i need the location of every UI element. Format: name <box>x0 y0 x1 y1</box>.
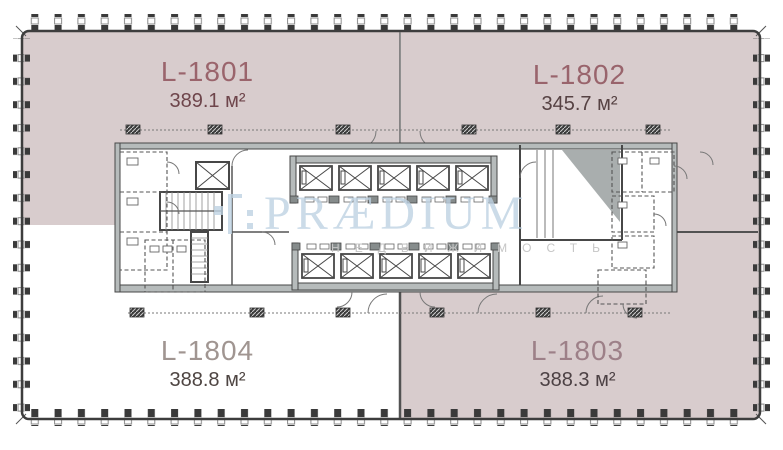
unit-zone-1801-side <box>23 143 116 225</box>
unit-id[interactable]: L-1804 <box>120 336 295 366</box>
core-left-section <box>120 150 289 292</box>
elevator-cell <box>378 166 410 202</box>
unit-label-1801[interactable]: L-1801 389.1 м² <box>120 57 295 113</box>
unit-area: 388.3 м² <box>490 370 665 392</box>
unit-label-1803[interactable]: L-1803 388.3 м² <box>490 336 665 392</box>
elevator-cell <box>380 244 412 278</box>
unit-label-1802[interactable]: L-1802 345.7 м² <box>492 60 667 116</box>
unit-label-1804[interactable]: L-1804 388.8 м² <box>120 336 295 392</box>
elevator-cell <box>458 244 490 278</box>
floorplan-page: PRÆDIUM НЕДВИЖИМОСТЬ L-1801 389.1 м² L-1… <box>0 0 783 450</box>
elevator-cell <box>300 166 332 202</box>
unit-area: 345.7 м² <box>492 94 667 116</box>
unit-area: 388.8 м² <box>120 370 295 392</box>
unit-id[interactable]: L-1803 <box>490 336 665 366</box>
elevator-bank-bottom <box>292 243 499 290</box>
unit-zone-right-strip <box>677 143 759 418</box>
stair-main <box>160 192 222 230</box>
elevator-cell <box>456 166 488 202</box>
elevator-cell <box>419 244 451 278</box>
unit-id[interactable]: L-1802 <box>492 60 667 90</box>
elevator-cell <box>339 166 371 202</box>
elevator-cell <box>341 244 373 278</box>
unit-id[interactable]: L-1801 <box>120 57 295 87</box>
unit-area: 389.1 м² <box>120 91 295 113</box>
fire-stair-ramp <box>562 150 620 222</box>
elevator-cell <box>302 244 334 278</box>
elevator-bank-top <box>290 156 497 203</box>
elevator-cell <box>417 166 449 202</box>
restroom-fixtures-right <box>618 158 659 248</box>
service-elevator <box>196 162 229 189</box>
